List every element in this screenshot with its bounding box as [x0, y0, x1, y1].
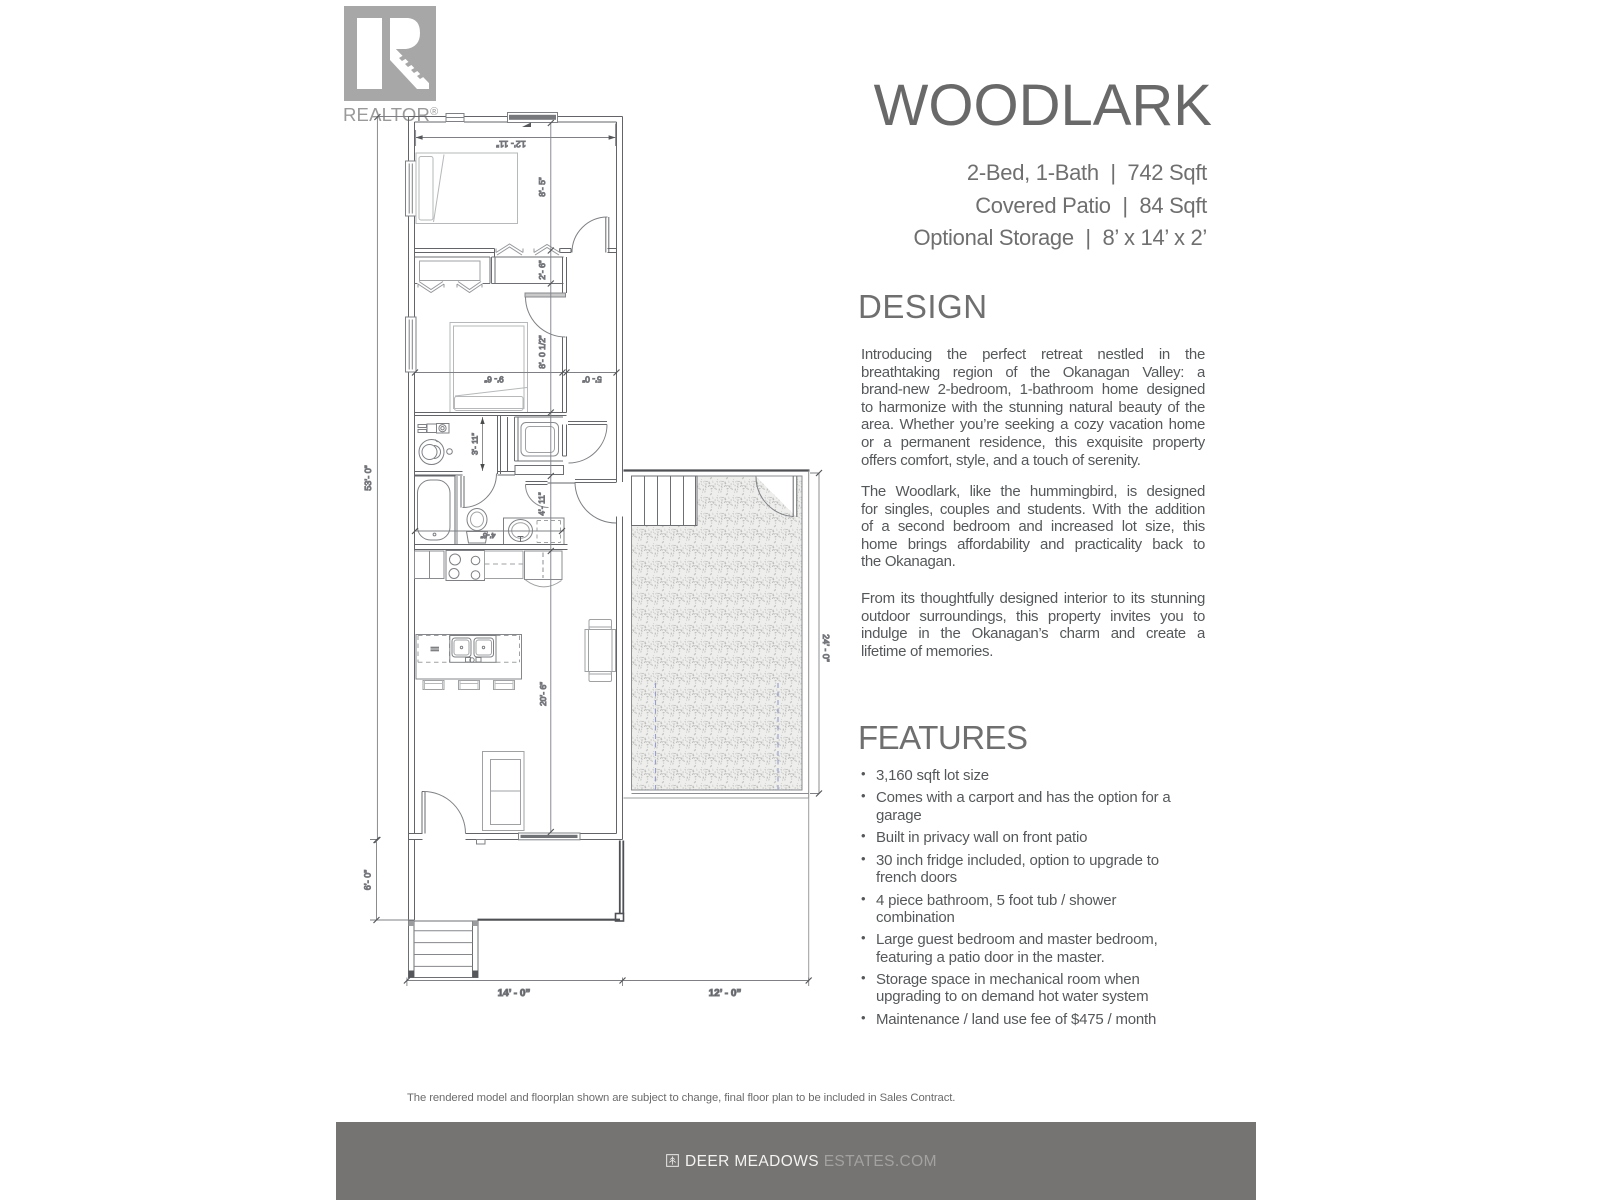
svg-text:3’- 11”: 3’- 11” [471, 433, 480, 455]
svg-text:5’- 0”: 5’- 0” [582, 375, 602, 385]
svg-text:6’- 0”: 6’- 0” [363, 870, 373, 891]
svg-text:8’- 0 1/2”: 8’- 0 1/2” [537, 335, 547, 369]
svg-text:4’- 11”: 4’- 11” [537, 492, 547, 516]
svg-text:12’- 11”: 12’- 11” [496, 139, 526, 149]
svg-text:2’- 6”: 2’- 6” [537, 260, 547, 280]
svg-text:24’ - 0”: 24’ - 0” [821, 634, 831, 662]
svg-text:12’ - 0”: 12’ - 0” [709, 988, 742, 999]
svg-text:14’ - 0”: 14’ - 0” [498, 988, 531, 999]
svg-text:9’- 6”: 9’- 6” [484, 375, 504, 385]
svg-text:4’-6”: 4’-6” [480, 531, 496, 540]
svg-text:20’- 6”: 20’- 6” [538, 682, 548, 706]
svg-text:53’- 0”: 53’- 0” [363, 465, 373, 491]
svg-text:8’- 5”: 8’- 5” [537, 177, 547, 197]
